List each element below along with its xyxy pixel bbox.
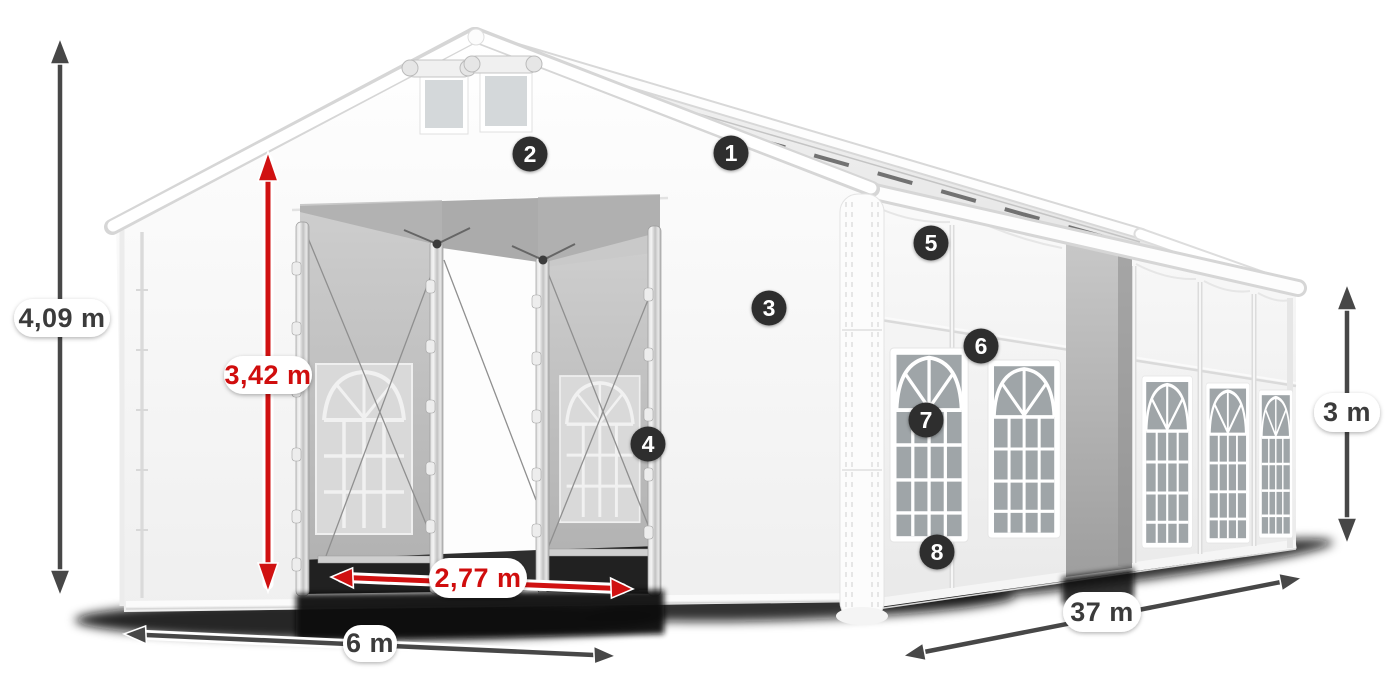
side-window-3 (1142, 376, 1192, 548)
tent-dimension-diagram: 4,09 m 3,42 m 2,77 m 6 m 37 m 3 m 1 2 3 … (0, 0, 1400, 700)
dimension-label-side-length: 37 m (1063, 592, 1141, 632)
callout-badge-2[interactable]: 2 (513, 137, 548, 172)
open-middle-span (442, 197, 538, 592)
tent-illustration (112, 29, 1298, 640)
callout-4-number: 4 (642, 431, 655, 457)
door-ground-bar-left (318, 556, 436, 563)
side-length-value: 37 m (1070, 597, 1134, 627)
total-height-value: 4,09 m (18, 303, 105, 333)
callout-badge-8[interactable]: 8 (920, 535, 955, 570)
callout-7-number: 7 (920, 407, 933, 433)
dimension-label-entrance-width: 2,77 m (429, 558, 527, 598)
callout-badge-5[interactable]: 5 (914, 226, 949, 261)
callout-badge-3[interactable]: 3 (752, 291, 787, 326)
front-width-value: 6 m (346, 628, 394, 658)
diagram-canvas: 4,09 m 3,42 m 2,77 m 6 m 37 m 3 m 1 2 3 … (0, 0, 1400, 700)
pole-left-outer (296, 222, 309, 596)
entrance-height-value: 3,42 m (224, 360, 311, 390)
side-door-opening (1066, 240, 1132, 577)
entrance-width-value: 2,77 m (434, 563, 521, 593)
dimension-label-wall-height: 3 m (1314, 393, 1380, 432)
side-window-5 (1259, 390, 1293, 538)
door-ground-bar-right (540, 549, 652, 556)
callout-badge-7[interactable]: 7 (909, 403, 944, 438)
side-window-4 (1206, 383, 1250, 543)
dimension-label-total-height: 4,09 m (14, 299, 110, 337)
side-window-1 (890, 348, 968, 542)
corner-post-cover (836, 194, 888, 625)
callout-8-number: 8 (931, 539, 944, 565)
callout-3-number: 3 (763, 295, 776, 321)
callout-2-number: 2 (524, 141, 537, 167)
dimension-label-front-width: 6 m (343, 625, 397, 662)
callout-badge-6[interactable]: 6 (964, 329, 999, 364)
gable-apex-cap (468, 29, 484, 45)
wall-height-value: 3 m (1323, 397, 1371, 427)
door-window-print-left (316, 364, 412, 534)
side-window-2 (988, 360, 1060, 538)
door-window-print-right (560, 376, 640, 522)
callout-1-number: 1 (725, 140, 738, 166)
callout-badge-1[interactable]: 1 (714, 136, 749, 171)
callout-6-number: 6 (975, 333, 988, 359)
callout-badge-4[interactable]: 4 (631, 427, 666, 462)
dimension-label-entrance-height: 3,42 m (224, 356, 312, 394)
callout-5-number: 5 (925, 230, 938, 256)
door-opening-left (300, 200, 442, 594)
